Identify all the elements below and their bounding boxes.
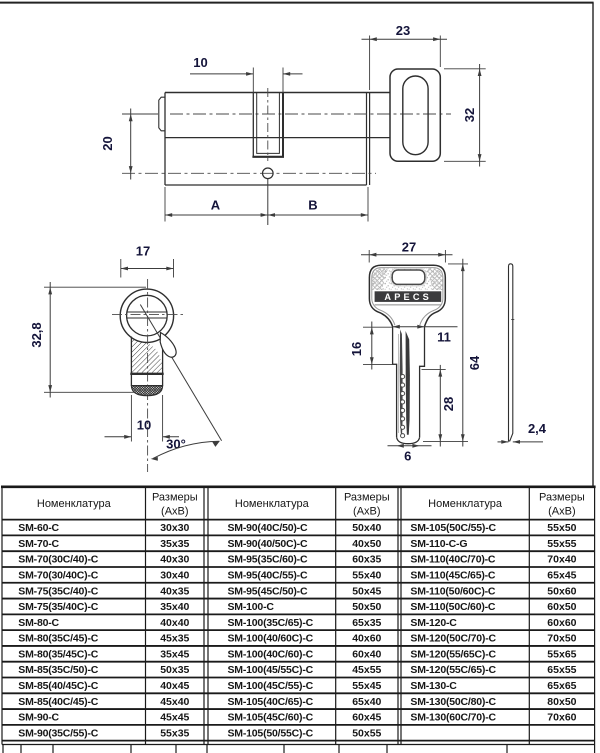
svg-text:65x35: 65x35 <box>352 617 381 629</box>
svg-text:SM-100(45/55C)-C: SM-100(45/55C)-C <box>228 664 314 676</box>
svg-text:45x45: 45x45 <box>160 712 189 724</box>
svg-text:Номенклатура: Номенклатура <box>235 498 310 510</box>
svg-text:SM-110(50/60C)-C: SM-110(50/60C)-C <box>410 585 496 597</box>
svg-text:16: 16 <box>349 342 364 356</box>
svg-text:B: B <box>308 198 317 213</box>
svg-text:SM-70(30/40C)-C: SM-70(30/40C)-C <box>18 569 98 581</box>
svg-text:30x30: 30x30 <box>160 522 189 534</box>
svg-text:45x35: 45x35 <box>160 633 189 645</box>
svg-text:11: 11 <box>437 330 451 345</box>
svg-text:APECS: APECS <box>384 292 432 302</box>
svg-text:80x50: 80x50 <box>547 696 576 708</box>
svg-text:27: 27 <box>402 240 416 255</box>
svg-text:SM-90-C: SM-90-C <box>18 712 59 724</box>
svg-text:SM-95(40C/55)-C: SM-95(40C/55)-C <box>228 569 308 581</box>
svg-text:SM-105(50C/55)-C: SM-105(50C/55)-C <box>410 522 496 534</box>
svg-text:70x60: 70x60 <box>547 712 576 724</box>
svg-text:30x40: 30x40 <box>160 569 189 581</box>
svg-text:45x40: 45x40 <box>160 696 189 708</box>
svg-text:40x40: 40x40 <box>160 617 189 629</box>
svg-text:60x40: 60x40 <box>352 648 381 660</box>
svg-text:70x40: 70x40 <box>547 554 576 566</box>
svg-text:SM-80-C: SM-80-C <box>18 617 59 629</box>
svg-text:SM-75(35/40C)-C: SM-75(35/40C)-C <box>18 601 98 613</box>
svg-text:65x40: 65x40 <box>352 696 381 708</box>
svg-text:60x60: 60x60 <box>547 617 576 629</box>
svg-text:SM-130(60C/70)-C: SM-130(60C/70)-C <box>410 712 496 724</box>
svg-text:20: 20 <box>100 136 115 150</box>
svg-text:SM-90(40/50C)-C: SM-90(40/50C)-C <box>228 538 308 550</box>
svg-text:55x40: 55x40 <box>352 569 381 581</box>
svg-text:SM-120(55/65C)-C: SM-120(55/65C)-C <box>410 648 496 660</box>
svg-text:Номенклатура: Номенклатура <box>37 498 112 510</box>
svg-text:55x55: 55x55 <box>547 538 576 550</box>
svg-text:SM-130-C: SM-130-C <box>410 680 457 692</box>
svg-text:50x55: 50x55 <box>352 727 381 739</box>
svg-text:45x55: 45x55 <box>352 664 381 676</box>
svg-text:(АхВ): (АхВ) <box>161 506 189 518</box>
svg-text:35x35: 35x35 <box>160 538 189 550</box>
svg-text:70x50: 70x50 <box>547 633 576 645</box>
svg-text:50x50: 50x50 <box>352 601 381 613</box>
svg-text:Размеры: Размеры <box>539 492 585 504</box>
svg-text:65x55: 65x55 <box>547 664 576 676</box>
svg-text:SM-120(50C/70)-C: SM-120(50C/70)-C <box>410 633 496 645</box>
svg-text:SM-100(45C/55)-C: SM-100(45C/55)-C <box>228 680 314 692</box>
svg-text:SM-85(40C/45)-C: SM-85(40C/45)-C <box>18 696 98 708</box>
svg-text:23: 23 <box>396 23 410 38</box>
svg-text:2,4: 2,4 <box>528 421 547 436</box>
svg-text:35x45: 35x45 <box>160 648 189 660</box>
svg-text:SM-95(45C/50)-C: SM-95(45C/50)-C <box>228 585 308 597</box>
svg-text:SM-130(50C/80)-C: SM-130(50C/80)-C <box>410 696 496 708</box>
svg-text:50x35: 50x35 <box>160 664 189 676</box>
svg-text:(АхВ): (АхВ) <box>548 506 576 518</box>
svg-text:40x60: 40x60 <box>352 633 381 645</box>
svg-text:SM-90(40C/50)-C: SM-90(40C/50)-C <box>228 522 308 534</box>
svg-text:SM-70(30C/40)-C: SM-70(30C/40)-C <box>18 554 98 566</box>
svg-text:SM-120-C: SM-120-C <box>410 617 457 629</box>
svg-text:SM-80(35/45C)-C: SM-80(35/45C)-C <box>18 648 98 660</box>
svg-text:SM-70-C: SM-70-C <box>18 538 59 550</box>
svg-text:35x40: 35x40 <box>160 601 189 613</box>
svg-text:30°: 30° <box>166 437 186 452</box>
svg-text:SM-90(35C/55)-C: SM-90(35C/55)-C <box>18 727 98 739</box>
svg-text:SM-110(50C/60)-C: SM-110(50C/60)-C <box>410 601 496 613</box>
svg-text:50x40: 50x40 <box>352 522 381 534</box>
svg-text:SM-105(50/55C)-C: SM-105(50/55C)-C <box>228 727 314 739</box>
svg-text:60x35: 60x35 <box>352 554 381 566</box>
svg-text:17: 17 <box>136 244 150 259</box>
svg-text:SM-110-C-G: SM-110-C-G <box>410 538 467 550</box>
svg-text:A: A <box>211 198 221 213</box>
svg-text:SM-85(40/45C)-C: SM-85(40/45C)-C <box>18 680 98 692</box>
svg-text:40x45: 40x45 <box>160 680 189 692</box>
svg-text:65x65: 65x65 <box>547 680 576 692</box>
svg-text:50x60: 50x60 <box>547 585 576 597</box>
svg-text:55x45: 55x45 <box>352 680 381 692</box>
svg-text:SM-100(40C/60)-C: SM-100(40C/60)-C <box>228 648 314 660</box>
svg-text:SM-60-C: SM-60-C <box>18 522 59 534</box>
svg-text:32: 32 <box>462 108 477 122</box>
svg-text:55x50: 55x50 <box>547 522 576 534</box>
svg-text:40x50: 40x50 <box>352 538 381 550</box>
svg-text:10: 10 <box>137 418 151 433</box>
svg-text:28: 28 <box>441 397 456 411</box>
svg-text:SM-105(45C/60)-C: SM-105(45C/60)-C <box>228 712 314 724</box>
svg-text:SM-75(35C/40)-C: SM-75(35C/40)-C <box>18 585 98 597</box>
svg-text:55x35: 55x35 <box>160 727 189 739</box>
svg-text:40x35: 40x35 <box>160 585 189 597</box>
svg-text:(АхВ): (АхВ) <box>353 506 381 518</box>
svg-text:10: 10 <box>193 55 207 70</box>
svg-text:32,8: 32,8 <box>29 322 44 347</box>
svg-text:Номенклатура: Номенклатура <box>428 498 503 510</box>
svg-text:SM-120(55C/65)-C: SM-120(55C/65)-C <box>410 664 496 676</box>
svg-text:64: 64 <box>467 355 482 370</box>
svg-text:50x45: 50x45 <box>352 585 381 597</box>
svg-text:40x30: 40x30 <box>160 554 189 566</box>
svg-text:60x50: 60x50 <box>547 601 576 613</box>
svg-text:SM-105(40C/65)-C: SM-105(40C/65)-C <box>228 696 314 708</box>
svg-text:SM-80(35C/45)-C: SM-80(35C/45)-C <box>18 633 98 645</box>
svg-text:Размеры: Размеры <box>344 492 390 504</box>
svg-text:65x45: 65x45 <box>547 569 576 581</box>
svg-text:60x45: 60x45 <box>352 712 381 724</box>
svg-text:SM-85(35C/50)-C: SM-85(35C/50)-C <box>18 664 98 676</box>
svg-text:SM-95(35C/60)-C: SM-95(35C/60)-C <box>228 554 308 566</box>
svg-text:SM-100(35C/65)-C: SM-100(35C/65)-C <box>228 617 314 629</box>
svg-text:SM-110(45C/65)-C: SM-110(45C/65)-C <box>410 569 496 581</box>
svg-text:SM-110(40C/70)-C: SM-110(40C/70)-C <box>410 554 496 566</box>
svg-text:Размеры: Размеры <box>152 492 198 504</box>
svg-text:55x65: 55x65 <box>547 648 576 660</box>
svg-text:SM-100-C: SM-100-C <box>228 601 275 613</box>
svg-text:SM-100(40/60C)-C: SM-100(40/60C)-C <box>228 633 314 645</box>
svg-text:6: 6 <box>404 449 411 464</box>
